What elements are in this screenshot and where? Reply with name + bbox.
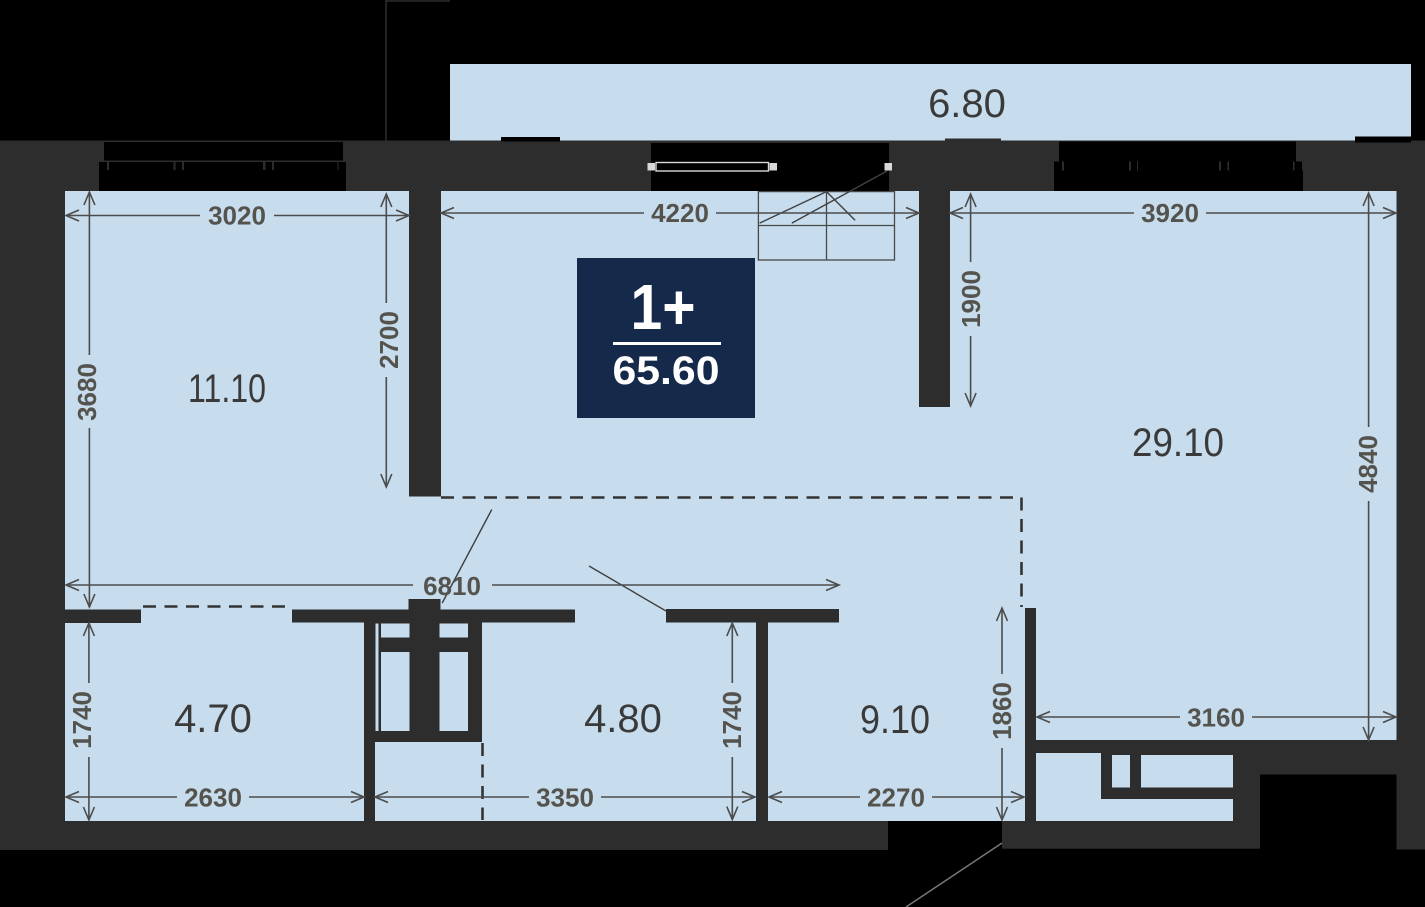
svg-text:3350: 3350 bbox=[536, 783, 594, 813]
svg-text:9.10: 9.10 bbox=[860, 698, 930, 742]
svg-text:4220: 4220 bbox=[651, 198, 709, 228]
svg-text:3920: 3920 bbox=[1141, 198, 1199, 228]
svg-text:6810: 6810 bbox=[423, 571, 481, 601]
svg-text:11.10: 11.10 bbox=[188, 367, 266, 411]
svg-text:3160: 3160 bbox=[1187, 703, 1245, 733]
svg-text:2270: 2270 bbox=[867, 783, 925, 813]
svg-text:4.70: 4.70 bbox=[174, 697, 252, 741]
svg-text:1+: 1+ bbox=[631, 271, 696, 343]
svg-text:1740: 1740 bbox=[717, 691, 747, 749]
svg-text:4.80: 4.80 bbox=[584, 697, 662, 741]
svg-text:4840: 4840 bbox=[1353, 435, 1383, 493]
svg-text:3680: 3680 bbox=[72, 363, 102, 421]
svg-text:65.60: 65.60 bbox=[613, 349, 720, 393]
svg-text:2630: 2630 bbox=[184, 783, 242, 813]
svg-text:1740: 1740 bbox=[67, 691, 97, 749]
svg-text:1860: 1860 bbox=[987, 682, 1017, 740]
svg-text:1900: 1900 bbox=[956, 270, 986, 328]
svg-text:29.10: 29.10 bbox=[1132, 421, 1224, 465]
svg-text:2700: 2700 bbox=[374, 311, 404, 369]
svg-text:6.80: 6.80 bbox=[928, 82, 1006, 126]
svg-text:3020: 3020 bbox=[208, 201, 266, 231]
